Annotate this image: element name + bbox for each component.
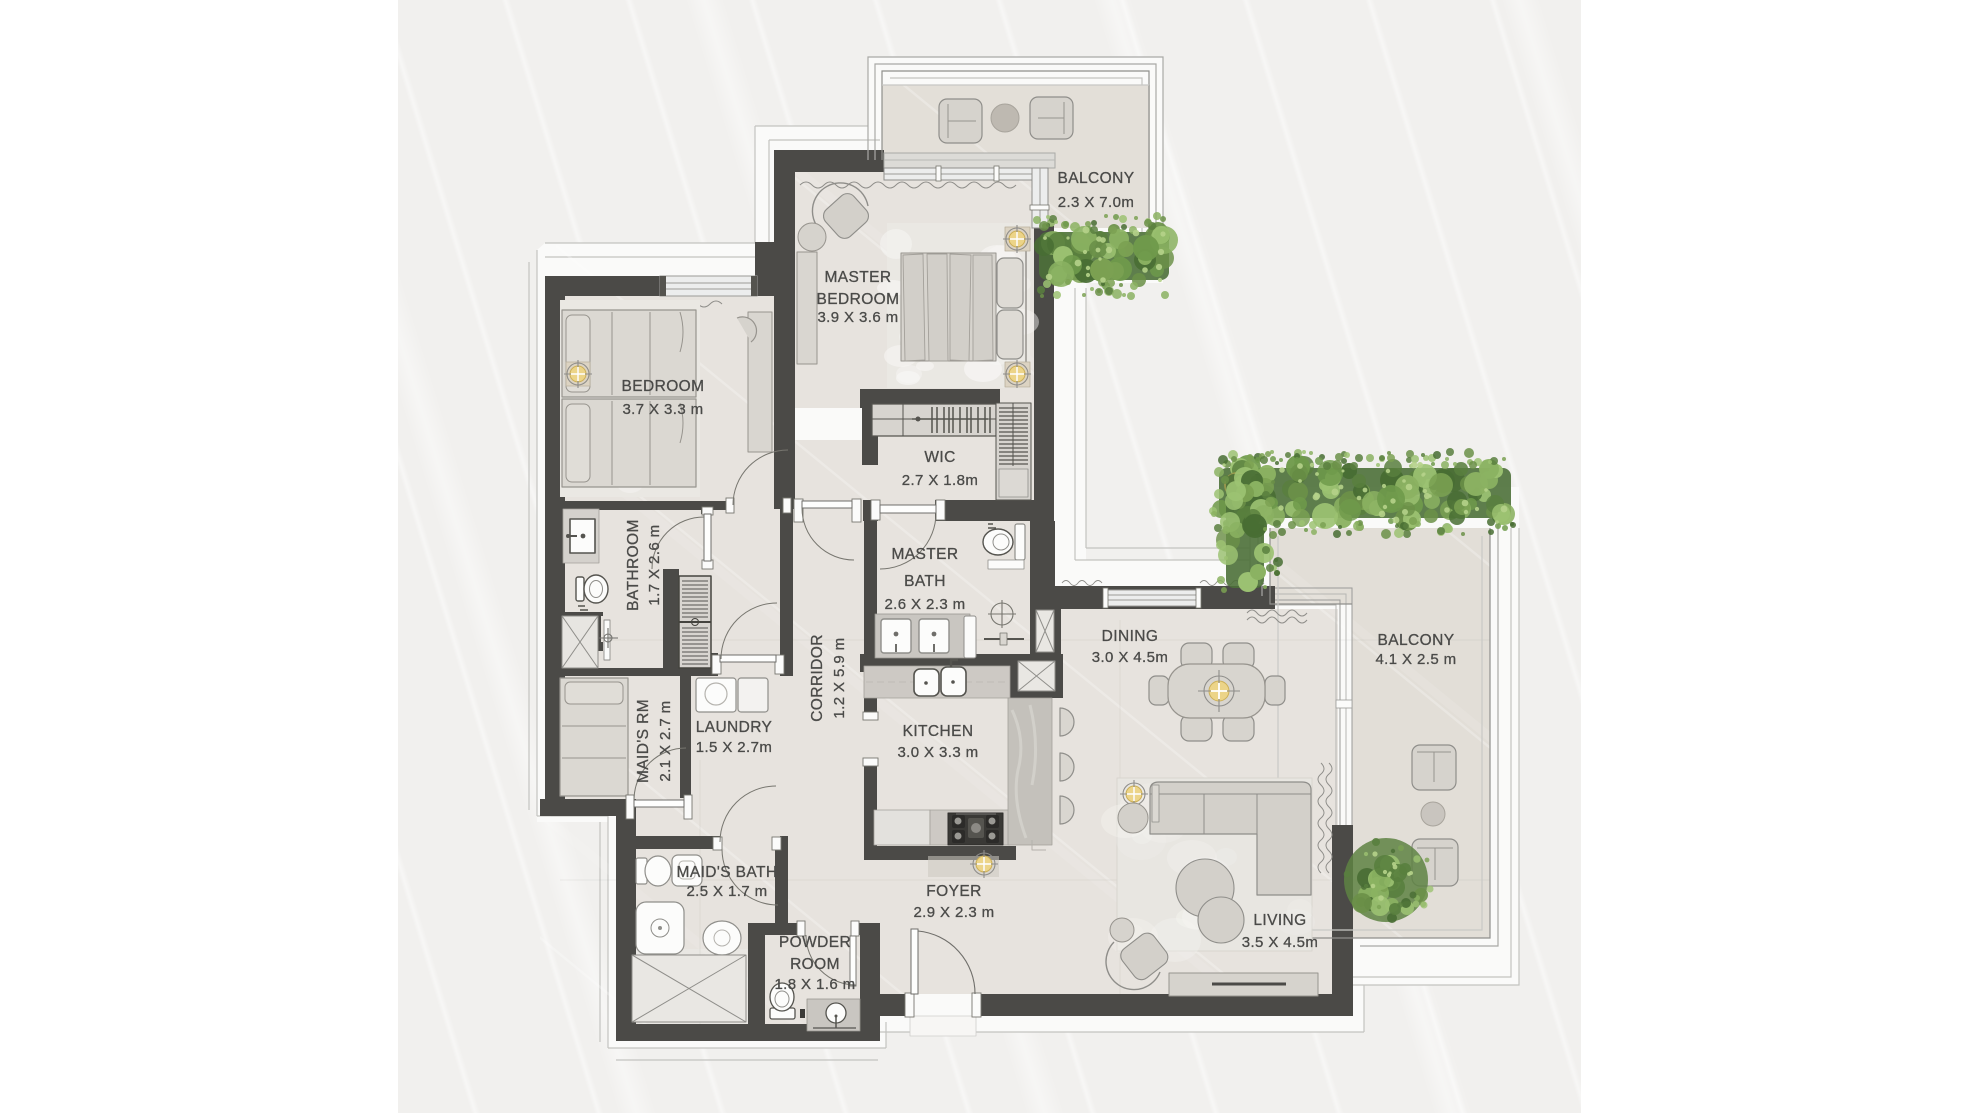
svg-text:2.9 X 2.3 m: 2.9 X 2.3 m [913, 904, 994, 921]
svg-text:2.3 X 7.0m: 2.3 X 7.0m [1058, 194, 1135, 211]
svg-text:WIC: WIC [924, 449, 955, 466]
svg-text:BALCONY: BALCONY [1378, 632, 1455, 649]
svg-text:MAID'S RM: MAID'S RM [635, 699, 652, 783]
svg-text:ROOM: ROOM [790, 956, 840, 973]
svg-text:BEDROOM: BEDROOM [817, 291, 900, 308]
svg-text:2.1 X 2.7 m: 2.1 X 2.7 m [657, 700, 674, 781]
svg-text:MASTER: MASTER [892, 546, 959, 563]
svg-text:1.2 X 5.9 m: 1.2 X 5.9 m [831, 637, 848, 718]
svg-text:MAID'S BATH: MAID'S BATH [677, 864, 778, 881]
svg-text:4.1 X 2.5 m: 4.1 X 2.5 m [1375, 651, 1456, 668]
svg-text:BALCONY: BALCONY [1058, 170, 1135, 187]
svg-text:3.0 X 3.3 m: 3.0 X 3.3 m [897, 744, 978, 761]
svg-text:1.7 X 2.6 m: 1.7 X 2.6 m [646, 524, 663, 605]
svg-text:BEDROOM: BEDROOM [622, 378, 705, 395]
svg-text:3.9 X 3.6 m: 3.9 X 3.6 m [817, 309, 898, 326]
svg-text:FOYER: FOYER [926, 883, 981, 900]
svg-text:2.6 X 2.3 m: 2.6 X 2.3 m [884, 596, 965, 613]
svg-text:KITCHEN: KITCHEN [903, 723, 974, 740]
svg-text:LIVING: LIVING [1253, 912, 1306, 929]
svg-text:POWDER: POWDER [779, 934, 851, 951]
svg-text:CORRIDOR: CORRIDOR [809, 634, 826, 722]
svg-text:3.7 X 3.3 m: 3.7 X 3.3 m [622, 401, 703, 418]
svg-text:1.5 X 2.7m: 1.5 X 2.7m [696, 739, 773, 756]
svg-text:DINING: DINING [1102, 628, 1159, 645]
svg-text:BATHROOM: BATHROOM [625, 519, 642, 611]
svg-text:3.0 X 4.5m: 3.0 X 4.5m [1092, 649, 1169, 666]
svg-text:2.7 X 1.8m: 2.7 X 1.8m [902, 472, 979, 489]
svg-text:2.5 X 1.7 m: 2.5 X 1.7 m [686, 883, 767, 900]
svg-text:3.5 X 4.5m: 3.5 X 4.5m [1242, 934, 1319, 951]
svg-text:MASTER: MASTER [825, 269, 892, 286]
svg-text:1.8 X 1.6 m: 1.8 X 1.6 m [774, 976, 855, 993]
svg-text:BATH: BATH [904, 573, 946, 590]
svg-text:LAUNDRY: LAUNDRY [696, 719, 773, 736]
